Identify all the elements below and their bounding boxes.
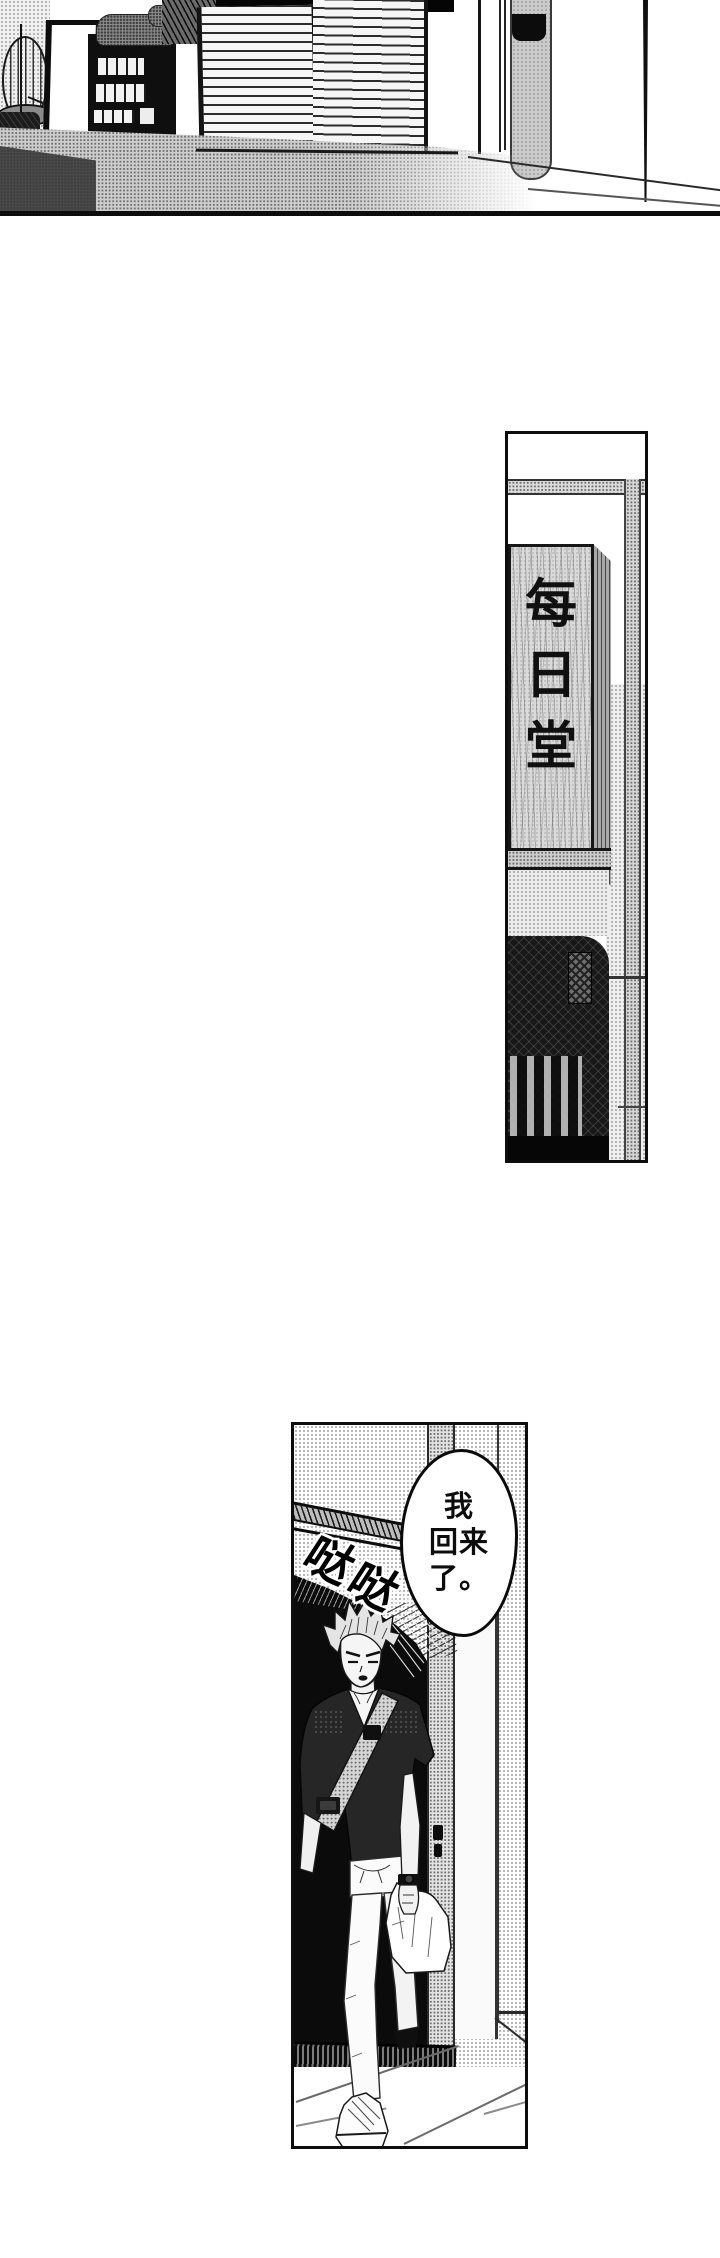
wall-edge-line [499, 0, 501, 152]
roller-shutter [196, 5, 318, 155]
right-forearm [400, 1773, 420, 1879]
vending-coin-panel [140, 108, 154, 124]
sign-character: 堂 [525, 719, 577, 775]
panel-entryway: 哒 哒 我 回来 了。 [291, 1422, 528, 2149]
wall-edge-line [424, 0, 428, 152]
strap-buckle [363, 1725, 381, 1740]
speech-bubble: 我 回来 了。 [400, 1449, 518, 1637]
wood-sign-side-face [593, 544, 611, 886]
futon-base-shadow [508, 1136, 609, 1160]
mouth [359, 1675, 368, 1680]
speech-text-line: 了。 [429, 1562, 489, 1596]
wall-line [618, 1106, 645, 1108]
pole-sign-band [512, 14, 546, 41]
wall-edge-line [504, 0, 506, 150]
sign-character: 每 [525, 577, 577, 633]
vending-display-row [96, 84, 146, 102]
cushion-detail [568, 952, 592, 1004]
wall-line [606, 976, 645, 979]
roller-shutter [313, 0, 428, 146]
sign-character: 日 [525, 648, 577, 704]
panel-signboard: 每 日 堂 [505, 431, 648, 1163]
rack-pole [20, 24, 22, 112]
speech-text-line: 我 [444, 1490, 474, 1524]
pillar [624, 479, 641, 1160]
thin-pole [643, 0, 648, 202]
speech-text-line: 回来 [429, 1526, 489, 1560]
vending-display-row [98, 58, 144, 75]
hand [399, 1885, 419, 1914]
vending-button-row [94, 110, 134, 123]
shirt-tone [314, 1711, 344, 1733]
wall-edge-line [478, 0, 481, 154]
wall-under-sign [508, 870, 609, 936]
front-leg [344, 1893, 382, 2101]
strap-slider-inner [320, 1801, 336, 1810]
manga-page: 每 日 堂 [0, 0, 720, 2258]
panel-street-scene [0, 0, 720, 216]
sign-bottom-ledge [508, 848, 611, 870]
wood-sign: 每 日 堂 [508, 544, 594, 852]
left-forearm [300, 1813, 321, 1873]
watch-face [405, 1875, 413, 1883]
